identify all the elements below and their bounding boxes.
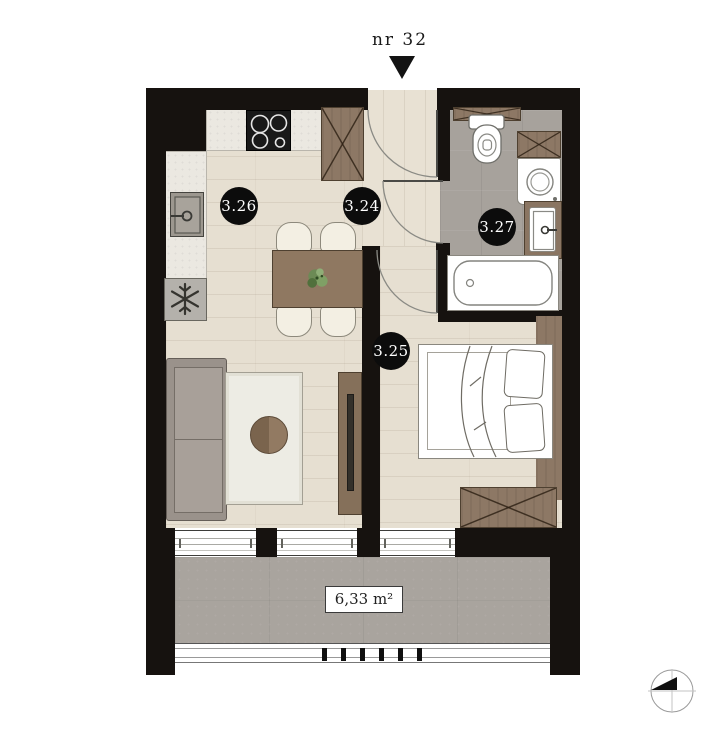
wall-living-bedroom-divider [362, 246, 380, 528]
entrance-unit-label: nr 32 [358, 30, 442, 50]
dining-chair [276, 222, 312, 252]
vanity-sink-icon [529, 207, 556, 252]
railing-tick [322, 648, 327, 661]
room-label-kitchen: 3.26 [220, 187, 258, 225]
railing-tick [360, 648, 365, 661]
toilet-icon [467, 113, 507, 165]
railing-tick [398, 648, 403, 661]
bedroom-wardrobe-icon [460, 487, 557, 528]
wall-balcony-pillar-right [550, 528, 580, 675]
bed-mattress-line [427, 352, 511, 450]
coffee-table [250, 416, 288, 454]
window [277, 530, 357, 556]
balcony-area-label: 6,33 m² [325, 586, 403, 613]
dining-table [272, 250, 363, 308]
window [175, 530, 256, 556]
room-label-bedroom: 3.25 [372, 332, 410, 370]
plant-icon [307, 268, 327, 287]
freezer-icon [164, 278, 207, 321]
wall-bottom-pillar-3 [357, 528, 380, 557]
railing-tick [417, 648, 422, 661]
bathtub-icon [447, 255, 559, 311]
sink-icon [170, 192, 204, 237]
railing-tick [341, 648, 346, 661]
bed-pillow [503, 349, 545, 400]
sofa-cushion-divider [175, 439, 222, 440]
hallway-floor [362, 90, 440, 252]
dining-chair [320, 222, 356, 252]
entrance-arrow-icon [389, 56, 415, 79]
room-label-hallway: 3.24 [343, 187, 381, 225]
bed-pillow [503, 403, 545, 454]
railing-tick [379, 648, 384, 661]
sofa-cushions [174, 367, 223, 513]
dining-chair [276, 306, 312, 337]
wall-bottom-pillar-left [146, 528, 175, 675]
washing-machine-icon [517, 158, 561, 205]
wall-bottom-pillar-2 [256, 528, 277, 557]
dining-chair [320, 306, 356, 337]
tv-icon [347, 394, 354, 491]
washer-cabinet [517, 131, 561, 158]
window [380, 530, 455, 556]
wall-right [562, 88, 580, 557]
wall-bathroom-left-upper [438, 110, 450, 181]
floor-plan: nr 32 6,33 m² [0, 0, 724, 729]
wall-left [146, 88, 166, 557]
stove-icon [246, 110, 291, 151]
wardrobe-icon [321, 107, 364, 181]
room-label-bathroom: 3.27 [478, 208, 516, 246]
compass-icon [648, 669, 696, 713]
